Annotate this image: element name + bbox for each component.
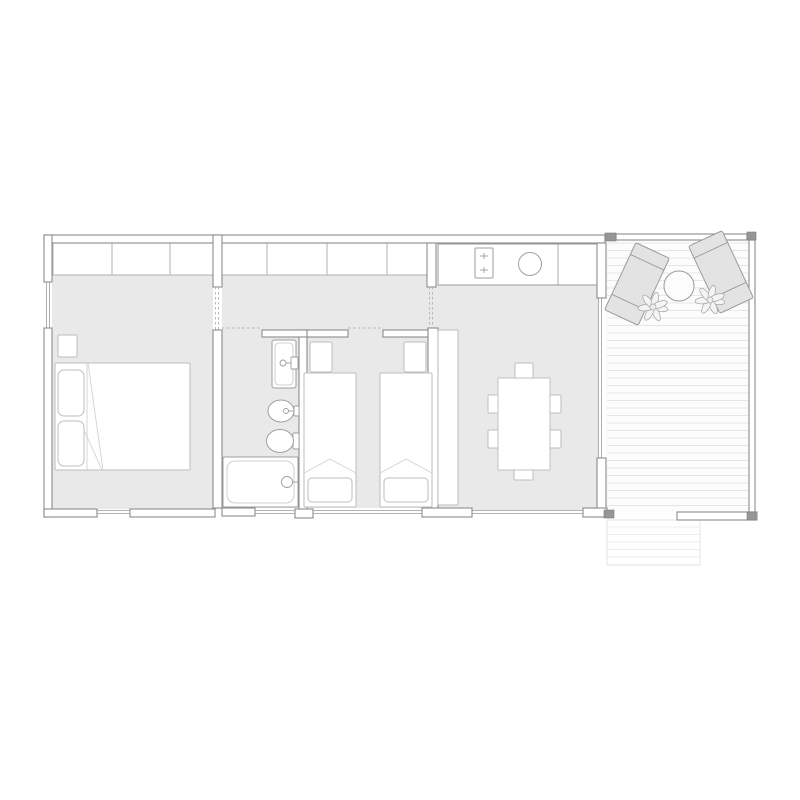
post-deck-bottom-right: [747, 512, 756, 520]
kitchen-sink: [519, 253, 542, 276]
deck-rail-top: [616, 234, 747, 240]
dining-chair: [514, 470, 533, 480]
wall-bottom-3: [295, 509, 313, 518]
kitchen-counter: [438, 244, 597, 285]
plant-center: [650, 304, 656, 310]
wall-bottom-1: [44, 509, 97, 517]
wall-pier-hall-living: [427, 243, 436, 287]
floor-hallway: [222, 275, 428, 330]
sideboard: [438, 330, 458, 505]
wall-bottom-4: [422, 508, 472, 517]
closet-band-hallway: [222, 243, 428, 275]
stove-cooktop: [475, 248, 493, 278]
pillow: [310, 342, 332, 372]
sink-faucet-knob: [280, 360, 286, 366]
deck-rail-right: [749, 240, 755, 512]
dining-chair: [515, 363, 533, 378]
wall-bottom-5: [583, 508, 607, 517]
pillow: [58, 421, 84, 466]
wall-bottom-2: [130, 509, 215, 517]
deck-wall-bottom: [677, 512, 757, 520]
dining-chair: [488, 430, 499, 448]
toilet: [267, 430, 294, 453]
post-deck-top-left: [605, 233, 616, 241]
pillow: [58, 370, 84, 416]
post-house-bottom-right: [604, 510, 614, 518]
pillow: [404, 342, 426, 372]
dining-table: [498, 378, 550, 470]
wall-top: [44, 235, 605, 243]
wall-bedroom2-top-right: [383, 330, 428, 337]
wall-bedroom2-top-left: [307, 330, 348, 337]
wall-bottom-bathroom: [222, 508, 255, 516]
kitchen-group: [438, 244, 597, 285]
bathtub-drain: [282, 477, 293, 488]
plant-center: [707, 297, 713, 303]
post-deck-top-right: [747, 232, 756, 240]
dining-chair: [550, 430, 561, 448]
floor-plan-canvas: [0, 0, 800, 800]
wall-right-pier-upper: [597, 243, 606, 298]
folded-blanket: [384, 478, 428, 502]
bidet-faucet: [294, 406, 299, 416]
dining-chair: [550, 395, 561, 413]
dining-chair: [488, 395, 499, 413]
closets-group: [53, 243, 428, 275]
nightstand: [58, 335, 77, 357]
bidet-faucet-knob: [284, 409, 289, 414]
wall-bathroom-top: [262, 330, 308, 337]
wall-pier-bedroom1-hall: [213, 235, 222, 287]
folded-blanket: [308, 478, 352, 502]
deck-round-table: [664, 271, 694, 301]
floor-plan-page: [0, 0, 800, 800]
wall-bedroom1-bathroom: [213, 330, 222, 508]
wall-left-upper: [44, 235, 52, 282]
closet-band-bedroom1: [53, 243, 213, 275]
sink-faucet: [291, 357, 298, 369]
wall-left-lower: [44, 328, 52, 517]
